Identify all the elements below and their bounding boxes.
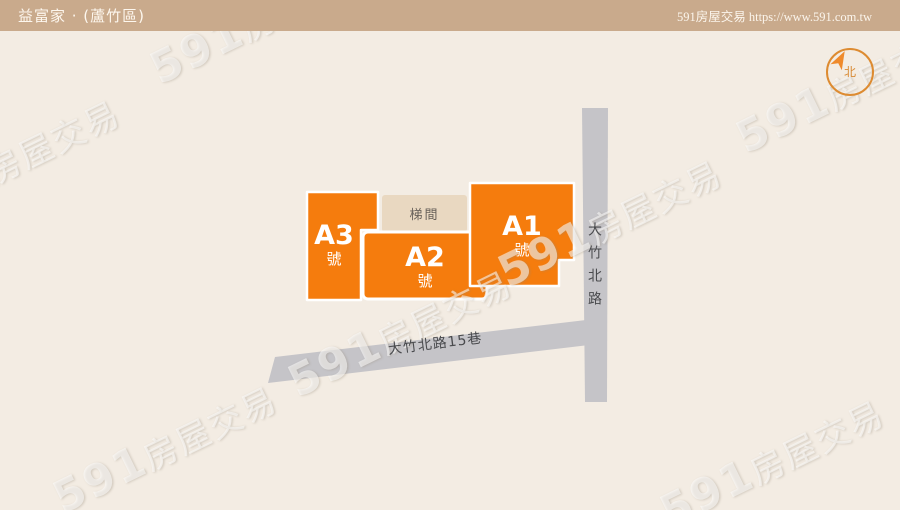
page-title: 益富家 ‧ (蘆竹區) xyxy=(18,5,145,26)
building-a2-label: A2 號 xyxy=(363,244,487,289)
north-arrow-icon xyxy=(828,49,852,71)
site-plan-map: 591房屋交易 591房屋交易 591房屋交易 591房屋交易 591房屋交易 … xyxy=(0,31,900,510)
road-vertical-label: 大竹北路 xyxy=(584,222,604,314)
building-a2-name: A2 xyxy=(405,244,445,271)
building-a2-suffix: 號 xyxy=(417,274,432,289)
building-a3-suffix: 號 xyxy=(326,252,341,267)
building-a3-name: A3 xyxy=(314,222,354,249)
building-a3-label: A3 號 xyxy=(307,222,361,267)
building-a1-name: A1 xyxy=(502,213,542,240)
stairwell-label: 梯間 xyxy=(382,195,467,232)
header-bar: 益富家 ‧ (蘆竹區) 591房屋交易 https://www.591.com.… xyxy=(0,0,900,31)
building-a1-suffix: 號 xyxy=(514,243,529,258)
site-plan-page: 益富家 ‧ (蘆竹區) 591房屋交易 https://www.591.com.… xyxy=(0,0,900,510)
brand-url: 591房屋交易 https://www.591.com.tw xyxy=(677,6,872,25)
compass: 北 xyxy=(826,48,874,96)
